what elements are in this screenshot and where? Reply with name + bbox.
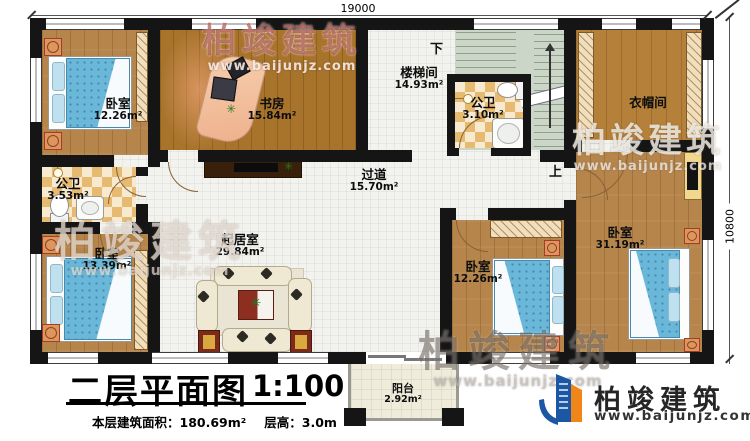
pillow — [668, 292, 680, 322]
nightstand — [684, 228, 700, 244]
stairs-up-label: 上 — [549, 161, 562, 180]
room-label-study: 书房 15.84m² — [248, 97, 297, 123]
wall — [523, 82, 531, 156]
nightstand — [42, 236, 60, 254]
window — [702, 60, 714, 128]
wall — [198, 150, 412, 162]
wall — [447, 148, 459, 156]
wall — [630, 140, 702, 152]
room-label-living-room: 起居室 29.84m² — [216, 233, 265, 259]
wardrobe — [578, 32, 594, 138]
wall — [132, 222, 160, 234]
dimension-line-top — [32, 15, 708, 16]
dimension-line-right — [729, 18, 730, 364]
window — [602, 18, 636, 30]
window — [152, 352, 228, 364]
bed-mattress — [494, 260, 550, 334]
wardrobe — [686, 32, 702, 138]
wall — [148, 234, 160, 352]
nightstand — [42, 324, 60, 342]
window — [30, 58, 42, 122]
brand-website: www.baijunjz.com — [594, 408, 750, 424]
title-sub-info: 本层建筑面积：180.69m² 层高：3.0m — [92, 412, 337, 431]
wall — [148, 18, 160, 167]
floor-area-label: 本层建筑面积：180.69m² — [92, 412, 246, 431]
dimension-right-value: 10800 — [724, 204, 737, 250]
room-label-bedroom-top-left: 卧室 12.26m² — [94, 97, 143, 123]
plan-title: 二层平面图 — [68, 364, 248, 413]
pillow — [668, 258, 680, 288]
window — [192, 18, 256, 30]
stairs-down-label: 下 — [430, 38, 443, 57]
wall — [447, 74, 531, 82]
room-label-balcony: 阳台 2.92m² — [384, 383, 422, 406]
title-underline — [66, 402, 306, 405]
wall — [564, 18, 576, 168]
wall — [491, 148, 531, 156]
wall — [42, 155, 114, 167]
tv — [234, 163, 278, 172]
room-label-bedroom-bottom-left: 卧室 13.39m² — [83, 247, 132, 273]
window — [492, 352, 550, 364]
wall — [488, 208, 564, 220]
pillow — [552, 266, 564, 294]
plant: ✳ — [226, 102, 236, 116]
wall — [440, 208, 452, 352]
bed-sheet-fold — [495, 261, 549, 333]
window — [702, 240, 714, 330]
floor-plan-page: 下 上 ✳ ✳ ✳ — [0, 0, 750, 441]
computer-monitor — [211, 76, 238, 101]
sofa-front — [222, 328, 292, 352]
room-label-hallway: 过道 15.70m² — [350, 168, 399, 194]
balcony-post — [344, 408, 366, 426]
window — [30, 254, 42, 330]
room-label-bedroom-bottom-middle: 卧室 12.26m² — [454, 260, 503, 286]
sofa-left — [196, 280, 218, 332]
window — [672, 18, 700, 30]
room-label-bath-left: 公卫 3.53m² — [47, 177, 88, 203]
side-table — [198, 330, 220, 354]
balcony-post — [442, 408, 464, 426]
floor-height-label: 层高：3.0m — [264, 412, 337, 431]
wall — [356, 30, 368, 150]
leader-mark — [715, 0, 740, 19]
pillow — [552, 296, 564, 324]
side-table — [290, 330, 312, 354]
wardrobe — [134, 250, 148, 350]
wall — [447, 82, 455, 156]
window — [48, 352, 98, 364]
sink — [492, 118, 525, 149]
wall — [160, 150, 168, 162]
nightstand — [544, 240, 560, 256]
nightstand — [544, 336, 560, 352]
wall — [564, 200, 576, 352]
window — [636, 352, 690, 364]
sliding-door — [368, 355, 406, 358]
stair-arrow-head — [545, 43, 555, 51]
building-logo-icon — [536, 372, 586, 426]
wall — [576, 140, 582, 152]
stair-treads-upper — [456, 32, 516, 74]
dimension-top-value: 19000 — [336, 2, 380, 15]
nightstand — [44, 38, 62, 56]
pillow — [52, 62, 65, 91]
window — [474, 18, 558, 30]
tv — [687, 162, 698, 190]
nightstand — [44, 132, 62, 150]
sliding-door — [404, 358, 442, 361]
pillow — [52, 94, 65, 123]
wall — [42, 222, 100, 234]
sofa-right — [288, 278, 312, 332]
stair-direction-arrow — [549, 50, 551, 128]
window — [278, 352, 328, 364]
room-label-bedroom-right: 卧室 31.19m² — [596, 226, 645, 252]
wardrobe — [490, 220, 562, 238]
wall — [440, 208, 456, 220]
coffee-table: ✳ — [238, 290, 274, 320]
pillow — [50, 296, 63, 325]
brand-logo — [536, 372, 586, 426]
room-label-cloakroom: 衣帽间 — [629, 96, 667, 110]
pillow — [50, 264, 63, 293]
wall — [136, 204, 148, 222]
room-label-stairwell: 楼梯间 14.93m² — [395, 66, 444, 92]
room-label-bath-top: 公卫 3.10m² — [462, 96, 503, 122]
plan-scale: 1:100 — [252, 369, 344, 403]
nightstand — [684, 338, 700, 352]
cloakroom-floor — [576, 30, 702, 140]
window — [46, 18, 124, 30]
